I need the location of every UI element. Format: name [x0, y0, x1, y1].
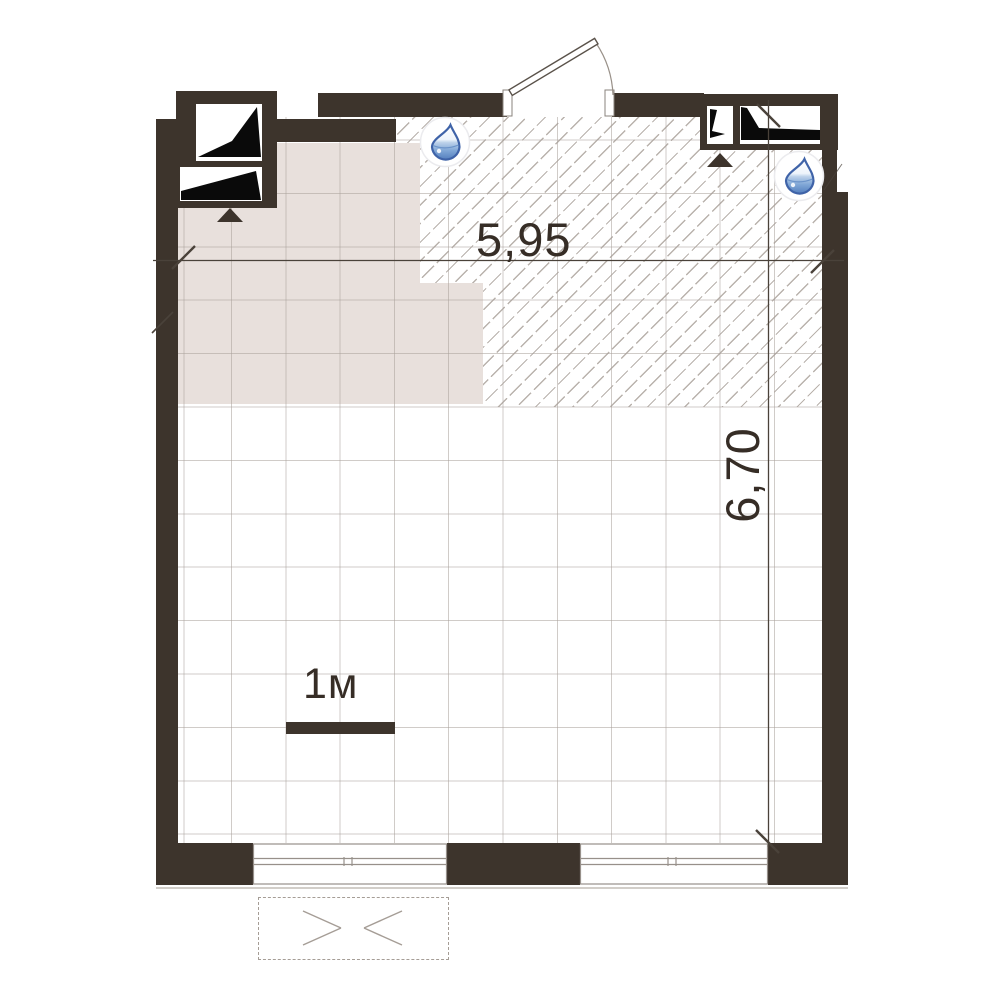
dimension-label-vertical: 6,70 [715, 427, 770, 522]
window-left-frame [253, 844, 447, 884]
dim-tick [811, 250, 834, 273]
linework-overlay [0, 0, 1000, 1000]
vent-arrow-icon [217, 208, 243, 222]
dimension-label-vertical-wrap: 6,70 [689, 419, 795, 531]
door-leaf [509, 38, 598, 95]
water-drop-icon [421, 118, 470, 167]
dimension-label-horizontal: 5,95 [476, 212, 571, 267]
floor-plan-canvas: 5,95 6,70 1м [0, 0, 1000, 1000]
door-swing-arc [596, 43, 613, 95]
dim-tick [172, 246, 195, 269]
balcony-chevrons [303, 911, 402, 945]
wall-break-mark [152, 312, 173, 333]
wall-step-mark [824, 164, 842, 190]
window-right-frame [580, 844, 768, 884]
scale-bar-label: 1м [303, 660, 358, 709]
water-drop-icon [775, 152, 824, 201]
scale-bar [286, 722, 395, 734]
vent-arrow-icon [707, 153, 733, 167]
entrance-door [503, 38, 614, 116]
vent-shaft-left-cells [180, 104, 262, 222]
